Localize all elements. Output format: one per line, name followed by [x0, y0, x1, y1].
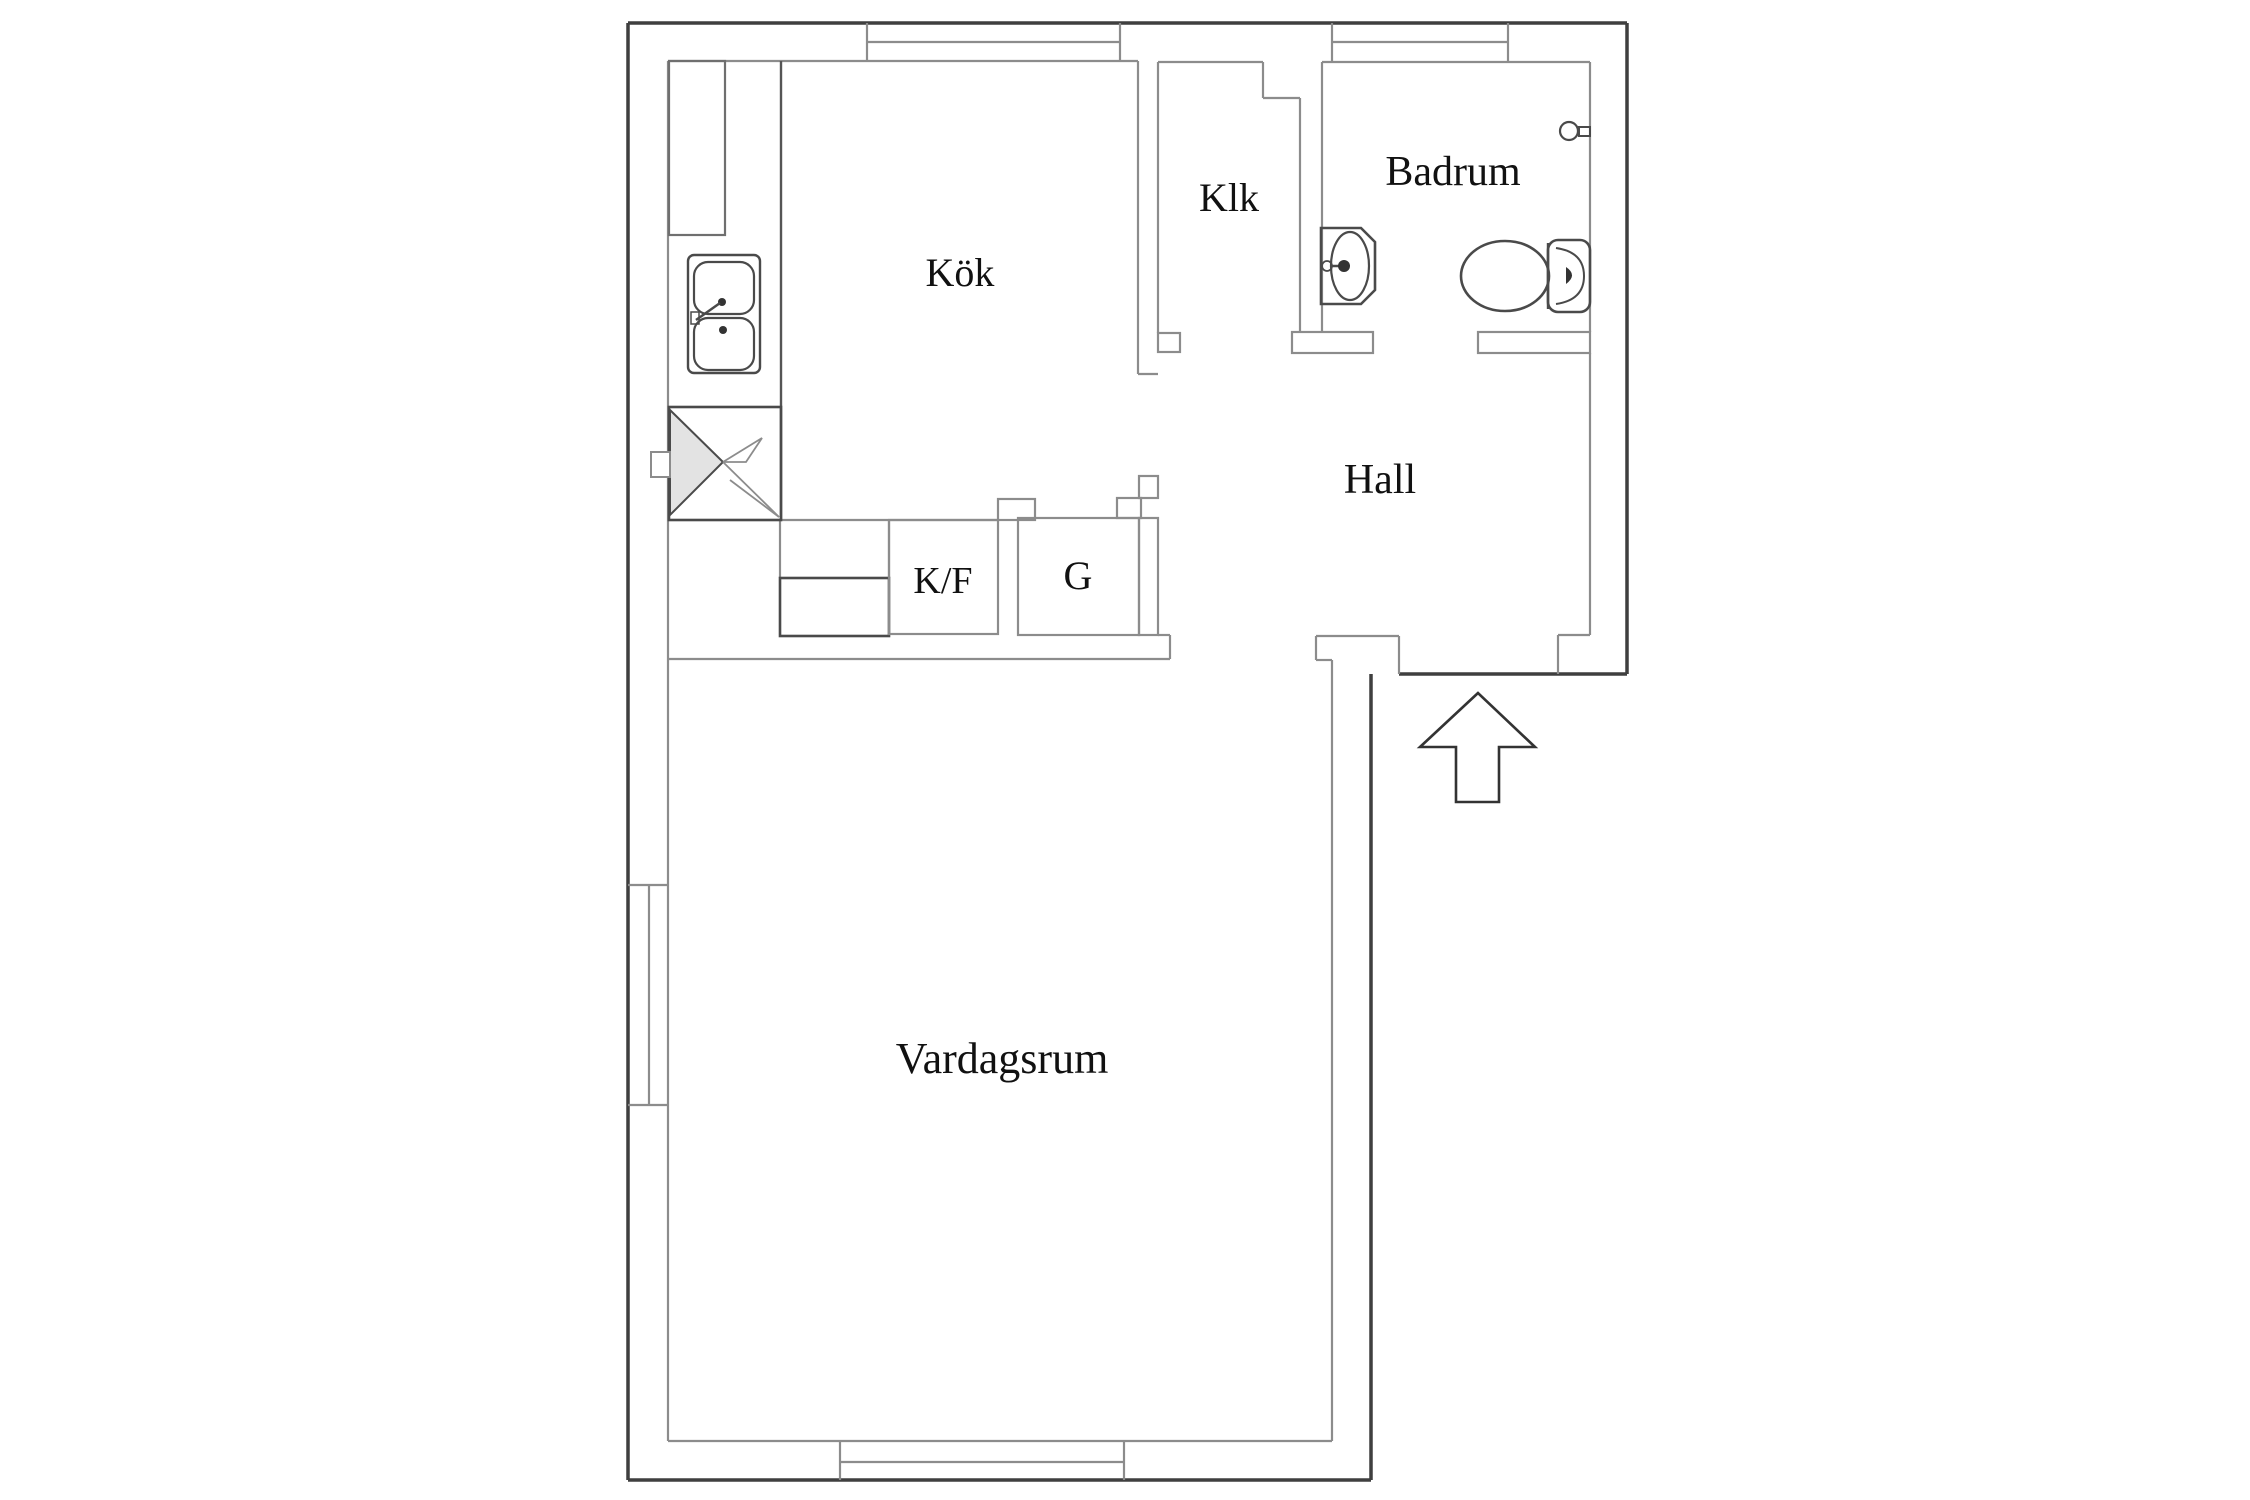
label-klk: Klk — [1199, 175, 1259, 220]
label-kf: K/F — [913, 560, 972, 602]
interior-walls — [668, 61, 1590, 1441]
window-top-kitchen — [867, 23, 1120, 61]
room-labels: Kök Klk Badrum Hall K/F G Vardagsrum — [896, 149, 1521, 1083]
floor-plan-canvas: Kök Klk Badrum Hall K/F G Vardagsrum — [0, 0, 2250, 1500]
label-vardagsrum: Vardagsrum — [896, 1034, 1109, 1083]
window-top-badrum — [1332, 23, 1508, 62]
stove-corner-unit-icon — [651, 407, 781, 520]
window-left-vardagsrum — [628, 885, 668, 1105]
window-bottom-vardagsrum — [840, 1441, 1124, 1480]
label-kok: Kök — [926, 250, 995, 295]
label-g: G — [1064, 553, 1093, 598]
appliance-box-icon — [780, 578, 889, 636]
bathroom-sink-icon — [1321, 228, 1375, 304]
floor-plan-drawing: Kök Klk Badrum Hall K/F G Vardagsrum — [0, 0, 2250, 1500]
label-hall: Hall — [1344, 457, 1416, 503]
kitchen-sink-icon — [688, 255, 760, 373]
toilet-icon — [1461, 240, 1590, 312]
towel-ring-icon — [1560, 122, 1590, 140]
label-badrum: Badrum — [1385, 149, 1521, 195]
entrance-arrow-icon — [1420, 693, 1535, 802]
kitchen-cabinet-icon — [669, 61, 725, 235]
